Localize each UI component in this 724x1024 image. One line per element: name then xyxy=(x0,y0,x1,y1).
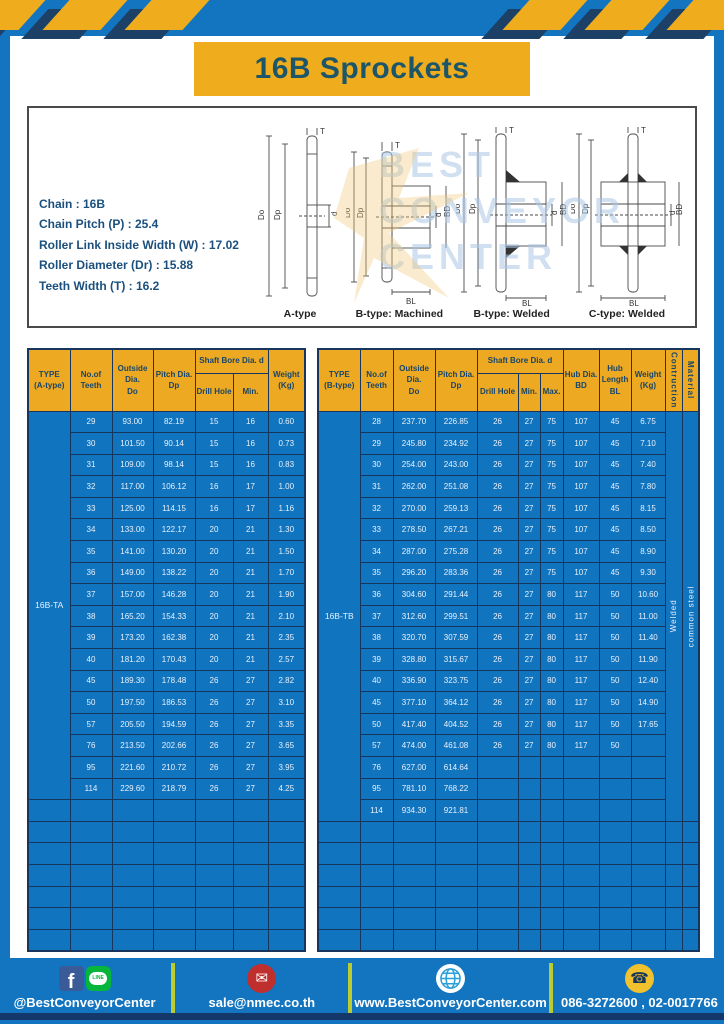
table-cell: 245.80 xyxy=(393,433,435,455)
table-cell: 38 xyxy=(360,627,393,649)
table-cell xyxy=(631,735,665,757)
diagram-caption: C-type: Welded xyxy=(589,308,665,320)
social-icons: f LINE xyxy=(59,962,111,994)
table-cell: 1.50 xyxy=(268,541,305,563)
svg-text:BD: BD xyxy=(675,204,683,215)
empty-cell xyxy=(233,843,268,865)
table-cell: 45 xyxy=(599,476,631,498)
empty-cell xyxy=(665,908,682,930)
table-cell: 404.52 xyxy=(435,713,477,735)
empty-cell xyxy=(28,929,70,951)
social-handle: @BestConveyorCenter xyxy=(14,995,156,1010)
empty-cell xyxy=(195,821,233,843)
empty-cell xyxy=(268,864,305,886)
empty-cell xyxy=(112,821,153,843)
header-material: Material xyxy=(682,349,699,411)
table-cell: 254.00 xyxy=(393,454,435,476)
svg-text:BD: BD xyxy=(443,206,452,217)
table-cell xyxy=(540,757,563,779)
hazard-stripe xyxy=(0,0,46,30)
table-cell: 101.50 xyxy=(112,433,153,455)
empty-cell xyxy=(268,929,305,951)
table-cell: 117 xyxy=(563,670,599,692)
table-cell xyxy=(518,757,540,779)
table-cell: 15 xyxy=(195,433,233,455)
table-cell: 3.35 xyxy=(268,713,305,735)
phone-numbers: 086-3272600 , 02-0017766 xyxy=(561,995,718,1010)
table-cell: 45 xyxy=(599,519,631,541)
table-cell: 21 xyxy=(233,627,268,649)
empty-cell xyxy=(195,929,233,951)
empty-cell xyxy=(435,908,477,930)
header-weight: Weight (Kg) xyxy=(631,349,665,411)
table-cell: 27 xyxy=(233,735,268,757)
empty-cell xyxy=(393,929,435,951)
empty-cell xyxy=(563,886,599,908)
table-cell: 336.90 xyxy=(393,670,435,692)
table-cell: 33 xyxy=(360,519,393,541)
table-cell xyxy=(540,800,563,822)
empty-cell xyxy=(153,929,195,951)
table-cell: 8.90 xyxy=(631,541,665,563)
table-cell: 270.00 xyxy=(393,497,435,519)
svg-text:BL: BL xyxy=(629,299,639,306)
table-cell: 328.80 xyxy=(393,649,435,671)
header-weight: Weight (Kg) xyxy=(268,349,305,411)
table-cell: 26 xyxy=(477,605,518,627)
table-cell: 27 xyxy=(233,778,268,800)
svg-text:d: d xyxy=(550,211,559,215)
header-type: TYPE (A-type) xyxy=(28,349,70,411)
empty-cell xyxy=(153,843,195,865)
table-cell: 259.13 xyxy=(435,497,477,519)
empty-cell xyxy=(195,908,233,930)
table-cell: 154.33 xyxy=(153,605,195,627)
table-cell: 37 xyxy=(360,605,393,627)
table-cell: 95 xyxy=(360,778,393,800)
table-cell: 229.60 xyxy=(112,778,153,800)
svg-text:Dp: Dp xyxy=(273,209,282,220)
footer-row: f LINE @BestConveyorCenter ✉ sale@nmec.c… xyxy=(0,959,724,1015)
table-cell: 117.00 xyxy=(112,476,153,498)
table-cell: 781.10 xyxy=(393,778,435,800)
empty-cell xyxy=(563,821,599,843)
table-cell: 307.59 xyxy=(435,627,477,649)
table-cell: 50 xyxy=(599,670,631,692)
empty-cell xyxy=(563,843,599,865)
table-cell: 377.10 xyxy=(393,692,435,714)
header-min: Min. xyxy=(518,373,540,411)
header-teeth: No.of Teeth xyxy=(360,349,393,411)
empty-cell xyxy=(682,908,699,930)
table-cell: 170.43 xyxy=(153,649,195,671)
table-cell: 26 xyxy=(477,411,518,433)
table-cell xyxy=(540,778,563,800)
svg-text:Do: Do xyxy=(346,207,352,218)
header-drill-hole: Drill Hole xyxy=(477,373,518,411)
svg-text:d: d xyxy=(434,213,443,217)
table-cell: 1.30 xyxy=(268,519,305,541)
table-cell: 323.75 xyxy=(435,670,477,692)
table-cell: 32 xyxy=(360,497,393,519)
table-cell: 26 xyxy=(477,562,518,584)
table-cell: 1.00 xyxy=(268,476,305,498)
empty-cell xyxy=(153,821,195,843)
table-cell: 133.00 xyxy=(112,519,153,541)
table-cell: 218.79 xyxy=(153,778,195,800)
table-cell: 114 xyxy=(360,800,393,822)
empty-cell xyxy=(195,843,233,865)
table-cell: 80 xyxy=(540,713,563,735)
header-pitch-dia: Pitch Dia. Dp xyxy=(153,349,195,411)
type-cell: 16B-TA xyxy=(28,411,70,800)
diagram-a-type: T Do Dp d A-type xyxy=(257,126,343,320)
footer-phone[interactable]: ☎ 086-3272600 , 02-0017766 xyxy=(555,959,724,1015)
table-cell: 107 xyxy=(563,519,599,541)
empty-cell xyxy=(435,864,477,886)
table-cell: 0.60 xyxy=(268,411,305,433)
table-cell: 186.53 xyxy=(153,692,195,714)
empty-cell xyxy=(318,821,360,843)
empty-cell xyxy=(682,864,699,886)
table-cell: 27 xyxy=(518,454,540,476)
table-cell: 39 xyxy=(360,649,393,671)
empty-cell xyxy=(268,843,305,865)
table-cell xyxy=(477,800,518,822)
hazard-stripe xyxy=(124,0,209,30)
table-cell: 107 xyxy=(563,562,599,584)
table-cell xyxy=(563,778,599,800)
table-cell: 34 xyxy=(70,519,112,541)
empty-cell xyxy=(477,886,518,908)
diagram-caption: B-type: Machined xyxy=(356,308,444,320)
table-cell: 26 xyxy=(477,433,518,455)
line-bubble: LINE xyxy=(89,972,107,985)
table-cell: 21 xyxy=(233,519,268,541)
spec-roller-link-width: Roller Link Inside Width (W) : 17.02 xyxy=(39,235,257,255)
empty-cell xyxy=(28,908,70,930)
table-cell: 80 xyxy=(540,649,563,671)
table-cell: 50 xyxy=(360,713,393,735)
facebook-icon: f xyxy=(59,966,84,991)
svg-text:T: T xyxy=(320,127,325,136)
empty-cell xyxy=(268,821,305,843)
empty-cell xyxy=(195,864,233,886)
table-cell: 210.72 xyxy=(153,757,195,779)
empty-cell xyxy=(153,800,195,822)
table-cell: 627.00 xyxy=(393,757,435,779)
table-cell: 45 xyxy=(599,433,631,455)
table-cell xyxy=(518,778,540,800)
table-cell: 205.50 xyxy=(112,713,153,735)
table-cell: 109.00 xyxy=(112,454,153,476)
empty-cell xyxy=(195,800,233,822)
empty-cell xyxy=(153,864,195,886)
table-cell: 27 xyxy=(518,692,540,714)
table-cell: 8.50 xyxy=(631,519,665,541)
empty-cell xyxy=(70,821,112,843)
empty-cell xyxy=(233,821,268,843)
table-cell: 213.50 xyxy=(112,735,153,757)
table-cell: 278.50 xyxy=(393,519,435,541)
diagram-caption: A-type xyxy=(284,308,317,320)
table-cell: 50 xyxy=(70,692,112,714)
empty-cell xyxy=(112,864,153,886)
table-cell: 15 xyxy=(195,454,233,476)
table-cell: 20 xyxy=(195,541,233,563)
table-cell: 38 xyxy=(70,605,112,627)
empty-cell xyxy=(682,821,699,843)
table-cell: 21 xyxy=(233,541,268,563)
header-shaft-bore: Shaft Bore Dia. d xyxy=(477,349,563,373)
table-cell: 221.60 xyxy=(112,757,153,779)
table-cell: 27 xyxy=(233,713,268,735)
table-cell: 2.35 xyxy=(268,627,305,649)
table-cell: 11.40 xyxy=(631,627,665,649)
table-cell: 27 xyxy=(518,497,540,519)
spec-teeth-width: Teeth Width (T) : 16.2 xyxy=(39,276,257,296)
table-cell: 304.60 xyxy=(393,584,435,606)
table-cell: 26 xyxy=(477,692,518,714)
table-cell: 80 xyxy=(540,692,563,714)
empty-cell xyxy=(563,864,599,886)
table-cell: 32 xyxy=(70,476,112,498)
table-cell: 50 xyxy=(599,627,631,649)
table-cell: 75 xyxy=(540,454,563,476)
table-cell: 30 xyxy=(70,433,112,455)
table-cell: 287.00 xyxy=(393,541,435,563)
poster: 16B Sprockets BEST CONVEYOR CENTER Chain… xyxy=(0,0,724,1024)
table-cell: 27 xyxy=(518,476,540,498)
table-cell: 934.30 xyxy=(393,800,435,822)
table-cell: 29 xyxy=(360,433,393,455)
top-hazard-bar xyxy=(0,0,724,36)
table-cell: 117 xyxy=(563,713,599,735)
table-cell: 107 xyxy=(563,541,599,563)
spec-chain-pitch: Chain Pitch (P) : 25.4 xyxy=(39,214,257,234)
material-cell: common steel xyxy=(682,411,699,821)
table-cell: 39 xyxy=(70,627,112,649)
empty-cell xyxy=(318,864,360,886)
table-cell: 4.25 xyxy=(268,778,305,800)
header-construction: Contruction xyxy=(665,349,682,411)
table-cell: 7.80 xyxy=(631,476,665,498)
header-max: Max. xyxy=(540,373,563,411)
table-cell: 141.00 xyxy=(112,541,153,563)
empty-cell xyxy=(435,886,477,908)
table-cell: 14.90 xyxy=(631,692,665,714)
empty-cell xyxy=(682,886,699,908)
empty-cell xyxy=(631,821,665,843)
empty-cell xyxy=(563,929,599,951)
empty-cell xyxy=(268,908,305,930)
empty-cell xyxy=(393,908,435,930)
empty-cell xyxy=(318,843,360,865)
table-cell: 197.50 xyxy=(112,692,153,714)
empty-cell xyxy=(631,864,665,886)
table-cell xyxy=(563,757,599,779)
table-cell xyxy=(599,757,631,779)
svg-text:T: T xyxy=(395,141,400,150)
table-cell: 6.75 xyxy=(631,411,665,433)
table-cell: 10.60 xyxy=(631,584,665,606)
empty-cell xyxy=(393,821,435,843)
empty-cell xyxy=(631,908,665,930)
empty-cell xyxy=(599,821,631,843)
table-cell: 57 xyxy=(360,735,393,757)
table-cell: 26 xyxy=(477,713,518,735)
table-cell: 26 xyxy=(477,497,518,519)
table-cell: 16 xyxy=(195,476,233,498)
empty-cell xyxy=(360,886,393,908)
table-cell: 21 xyxy=(233,649,268,671)
svg-text:Do: Do xyxy=(456,203,462,214)
empty-cell xyxy=(518,929,540,951)
table-cell: 75 xyxy=(540,541,563,563)
page: 16B Sprockets BEST CONVEYOR CENTER Chain… xyxy=(10,36,714,958)
table-cell: 16 xyxy=(233,454,268,476)
table-cell: 234.92 xyxy=(435,433,477,455)
table-cell: 26 xyxy=(195,670,233,692)
empty-cell xyxy=(477,821,518,843)
table-cell: 20 xyxy=(195,562,233,584)
tables-row: TYPE (A-type) No.of Teeth Outside Dia. D… xyxy=(27,348,697,952)
table-cell: 173.20 xyxy=(112,627,153,649)
hazard-stripe xyxy=(584,0,669,30)
empty-cell xyxy=(435,843,477,865)
table-cell: 27 xyxy=(518,433,540,455)
table-cell: 26 xyxy=(195,778,233,800)
table-cell: 12.40 xyxy=(631,670,665,692)
table-cell: 21 xyxy=(233,584,268,606)
table-cell: 299.51 xyxy=(435,605,477,627)
table-cell: 27 xyxy=(233,692,268,714)
table-cell: 98.14 xyxy=(153,454,195,476)
empty-cell xyxy=(233,800,268,822)
spec-roller-diameter: Roller Diameter (Dr) : 15.88 xyxy=(39,255,257,275)
table-cell: 26 xyxy=(477,735,518,757)
footer-divider xyxy=(171,963,175,1013)
table-cell: 31 xyxy=(70,454,112,476)
table-cell: 2.57 xyxy=(268,649,305,671)
table-cell: 75 xyxy=(540,433,563,455)
footer-social[interactable]: f LINE @BestConveyorCenter xyxy=(0,959,169,1015)
table-cell: 181.20 xyxy=(112,649,153,671)
svg-text:Do: Do xyxy=(571,203,577,214)
empty-cell xyxy=(599,864,631,886)
empty-cell xyxy=(665,843,682,865)
svg-text:Do: Do xyxy=(257,209,266,220)
footer-email[interactable]: ✉ sale@nmec.co.th xyxy=(177,959,346,1015)
empty-cell xyxy=(435,929,477,951)
empty-cell xyxy=(631,886,665,908)
table-cell: 26 xyxy=(195,692,233,714)
empty-cell xyxy=(435,821,477,843)
table-cell: 27 xyxy=(518,541,540,563)
table-cell: 80 xyxy=(540,584,563,606)
empty-cell xyxy=(393,886,435,908)
table-cell: 35 xyxy=(70,541,112,563)
table-cell: 7.10 xyxy=(631,433,665,455)
empty-cell xyxy=(153,908,195,930)
header-pitch-dia: Pitch Dia. Dp xyxy=(435,349,477,411)
footer-navy-strip xyxy=(0,1013,724,1020)
table-cell: 16 xyxy=(233,411,268,433)
empty-cell xyxy=(233,886,268,908)
table-cell: 17.65 xyxy=(631,713,665,735)
empty-cell xyxy=(112,886,153,908)
table-cell: 27 xyxy=(518,584,540,606)
table-cell xyxy=(599,778,631,800)
table-cell: 35 xyxy=(360,562,393,584)
spec-list: Chain : 16B Chain Pitch (P) : 25.4 Rolle… xyxy=(39,194,257,326)
table-cell: 27 xyxy=(518,670,540,692)
table-cell: 461.08 xyxy=(435,735,477,757)
table-cell: 0.73 xyxy=(268,433,305,455)
table-cell: 114 xyxy=(70,778,112,800)
table-cell: 26 xyxy=(477,541,518,563)
header-outside-dia: Outside Dia. Do xyxy=(393,349,435,411)
empty-cell xyxy=(70,886,112,908)
empty-cell xyxy=(195,886,233,908)
table-cell: 2.82 xyxy=(268,670,305,692)
svg-text:Dp: Dp xyxy=(581,203,590,214)
globe-icon xyxy=(436,964,465,993)
svg-text:Dp: Dp xyxy=(356,207,365,218)
table-cell: 0.83 xyxy=(268,454,305,476)
empty-cell xyxy=(665,929,682,951)
empty-cell xyxy=(268,800,305,822)
svg-text:BL: BL xyxy=(406,297,416,306)
table-cell: 75 xyxy=(540,411,563,433)
header-min: Min. xyxy=(233,373,268,411)
table-cell: 178.48 xyxy=(153,670,195,692)
empty-cell xyxy=(599,843,631,865)
empty-cell xyxy=(563,908,599,930)
empty-cell xyxy=(540,843,563,865)
table-cell: 90.14 xyxy=(153,433,195,455)
empty-cell xyxy=(233,929,268,951)
table-cell: 194.59 xyxy=(153,713,195,735)
table-cell: 262.00 xyxy=(393,476,435,498)
table-cell: 27 xyxy=(518,562,540,584)
footer-website[interactable]: www.BestConveyorCenter.com xyxy=(354,959,546,1015)
table-cell: 31 xyxy=(360,476,393,498)
table-cell: 21 xyxy=(233,605,268,627)
empty-cell xyxy=(540,821,563,843)
table-cell: 417.40 xyxy=(393,713,435,735)
table-cell xyxy=(599,800,631,822)
table-cell: 15 xyxy=(195,411,233,433)
table-cell: 45 xyxy=(599,497,631,519)
table-cell: 16 xyxy=(195,497,233,519)
table-cell: 40 xyxy=(360,670,393,692)
table-cell: 29 xyxy=(70,411,112,433)
empty-cell xyxy=(599,886,631,908)
empty-cell xyxy=(518,908,540,930)
empty-cell xyxy=(631,929,665,951)
table-cell: 189.30 xyxy=(112,670,153,692)
diagram-b-type-welded: T Do Dp d BD BL B-type: Welded xyxy=(456,126,568,320)
table-cell: 45 xyxy=(599,541,631,563)
line-icon: LINE xyxy=(86,966,111,991)
table-cell: 921.81 xyxy=(435,800,477,822)
construction-cell: Welded xyxy=(665,411,682,821)
table-cell: 11.90 xyxy=(631,649,665,671)
page-title: 16B Sprockets xyxy=(255,52,470,86)
table-cell: 21 xyxy=(233,562,268,584)
table-cell: 768.22 xyxy=(435,778,477,800)
